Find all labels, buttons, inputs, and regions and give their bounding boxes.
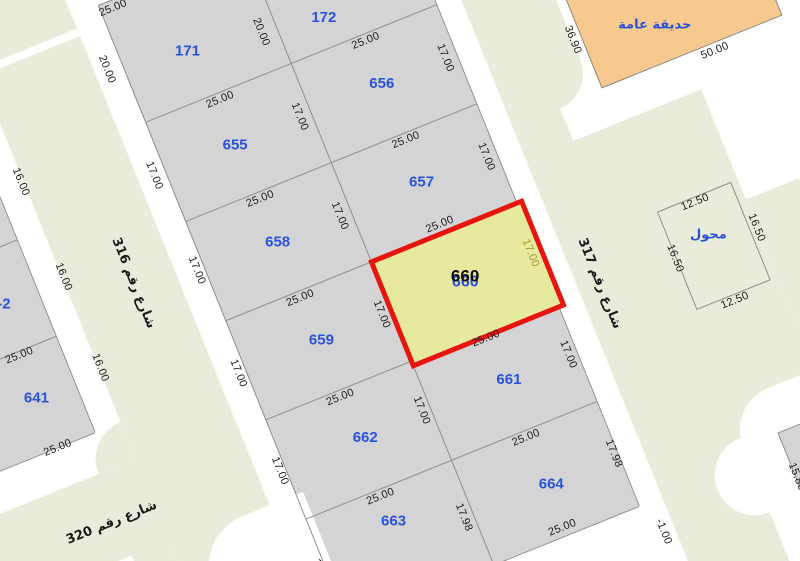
- parcel-label-664[interactable]: 664: [539, 477, 564, 492]
- dimension-label: -1.00: [653, 517, 673, 546]
- parcel-660-label[interactable]: 660 660: [451, 267, 479, 285]
- parcel-label-657[interactable]: 657: [409, 174, 434, 189]
- map-canvas[interactable]: 660 660 25.0025.0025.0025.0025.0025.0025…: [0, 0, 800, 561]
- parcel-660-number: 660: [451, 266, 479, 285]
- parcel-label-171[interactable]: 171: [175, 43, 200, 58]
- parcel-label-656[interactable]: 656: [369, 76, 394, 91]
- parcel-label-663[interactable]: 663: [381, 513, 406, 528]
- parcel-660-label-stack: 660 660: [451, 267, 479, 285]
- parcel-label-661[interactable]: 661: [496, 372, 521, 387]
- dimension-label: 20.00: [96, 54, 117, 85]
- parcel-label-655[interactable]: 655: [223, 137, 248, 152]
- parcel-label-172[interactable]: 172: [311, 10, 336, 25]
- parcel-label-641[interactable]: 641: [24, 390, 49, 405]
- transformer-label: محول: [690, 229, 727, 242]
- parcel-label-659[interactable]: 659: [309, 332, 334, 347]
- parcel-label-658[interactable]: 658: [265, 235, 290, 250]
- dimension-label: 17.00: [143, 160, 164, 191]
- parcel-label--2[interactable]: -2: [0, 297, 11, 312]
- public-garden-label: حديقة عامة: [618, 18, 691, 31]
- parcel-label-662[interactable]: 662: [353, 430, 378, 445]
